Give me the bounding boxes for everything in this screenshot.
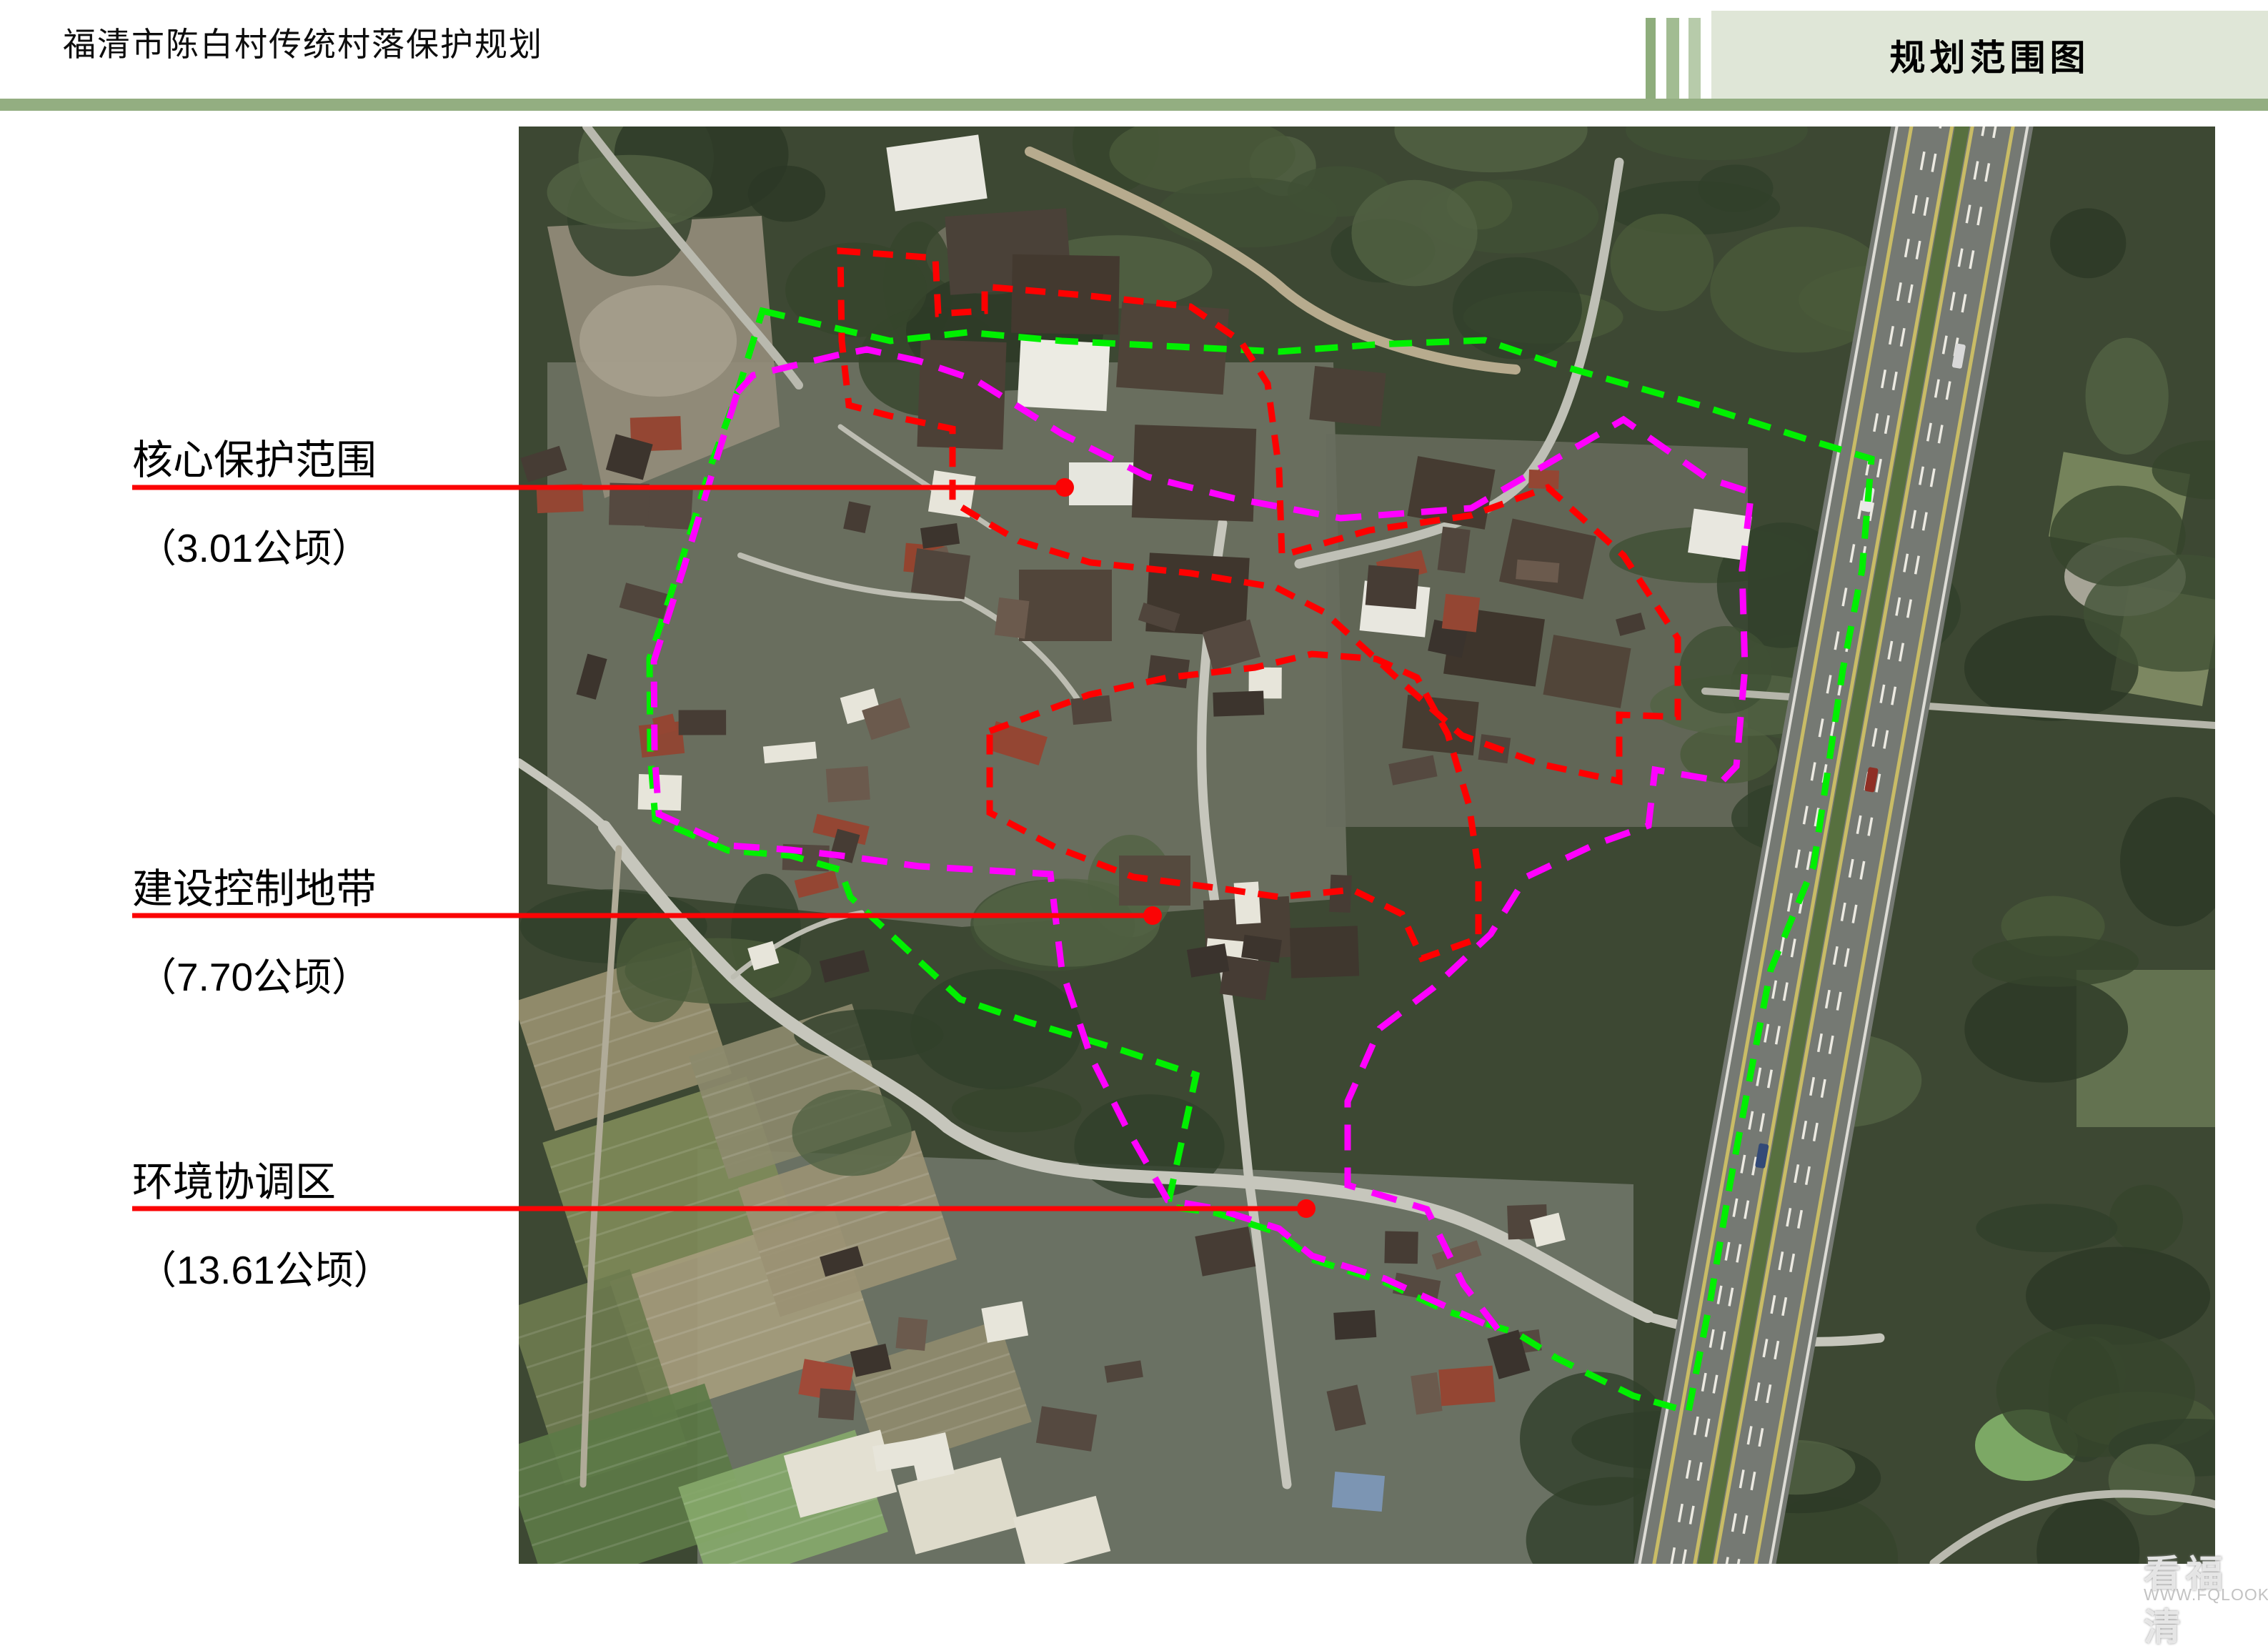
legend-area-environment: （13.61公顷） <box>137 1238 393 1295</box>
map-title-box: 规划范围图 <box>1711 11 2268 99</box>
header-stripe-3 <box>1688 18 1701 99</box>
legend-label-buffer: 建设控制地带 <box>132 856 377 915</box>
page-title: 福清市陈白村传统村落保护规划 <box>63 19 543 66</box>
legend-label-environment: 环境协调区 <box>132 1149 336 1208</box>
map-title: 规划范围图 <box>1890 29 2090 81</box>
page-root: { "page": {"width": 3174, "height": 2245… <box>0 0 2268 1605</box>
header-stripe-2 <box>1666 18 1679 99</box>
header-stripe-1 <box>1646 18 1656 99</box>
legend-area-buffer: （7.70公顷） <box>137 945 371 1002</box>
satellite-map <box>519 127 2215 1564</box>
watermark-url: WWW.FQLOOK.COM <box>2144 1585 2268 1605</box>
legend-label-core: 核心保护范围 <box>132 427 377 486</box>
header-accent-bar <box>0 99 2268 111</box>
legend-area-core: （3.01公顷） <box>137 516 371 573</box>
